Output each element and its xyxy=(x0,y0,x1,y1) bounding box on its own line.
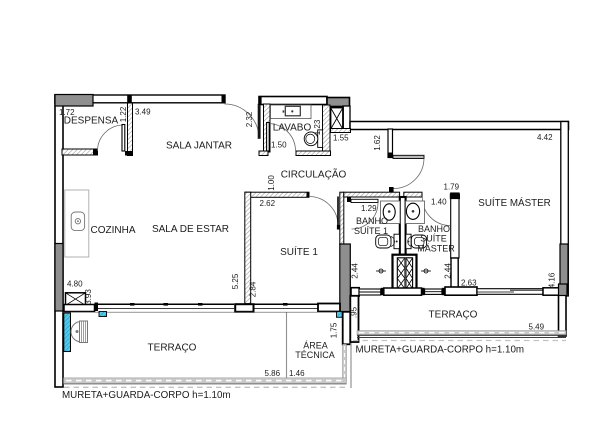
svg-text:SUÍTE 1: SUÍTE 1 xyxy=(354,226,388,236)
svg-text:1.72: 1.72 xyxy=(59,108,75,117)
svg-text:SALA DE ESTAR: SALA DE ESTAR xyxy=(152,224,229,235)
svg-text:TÉCNICA: TÉCNICA xyxy=(295,350,335,360)
svg-text:1.79: 1.79 xyxy=(444,183,460,192)
svg-text:3.49: 3.49 xyxy=(135,108,151,117)
svg-text:1.55: 1.55 xyxy=(333,134,349,143)
svg-text:SUÍTE MÁSTER: SUÍTE MÁSTER xyxy=(478,198,550,209)
svg-text:1.75: 1.75 xyxy=(330,322,339,338)
svg-text:MÁSTER: MÁSTER xyxy=(417,244,455,254)
svg-text:SUÍTE 1: SUÍTE 1 xyxy=(280,245,318,258)
svg-text:SALA JANTAR: SALA JANTAR xyxy=(166,141,232,152)
svg-text:5.25: 5.25 xyxy=(231,273,240,289)
svg-text:1.62: 1.62 xyxy=(373,135,382,151)
svg-text:BANHO: BANHO xyxy=(356,216,388,226)
svg-text:DESPENSA: DESPENSA xyxy=(64,116,119,127)
svg-text:5.49: 5.49 xyxy=(529,323,545,332)
svg-text:1.22: 1.22 xyxy=(119,106,128,122)
svg-text:2.44: 2.44 xyxy=(351,263,360,279)
svg-text:ÁREA: ÁREA xyxy=(303,341,328,351)
svg-text:TERRAÇO: TERRAÇO xyxy=(148,343,197,354)
svg-text:4.16: 4.16 xyxy=(548,272,557,288)
svg-text:4.42: 4.42 xyxy=(537,133,553,142)
svg-text:LAVABO: LAVABO xyxy=(273,123,312,134)
svg-text:COZINHA: COZINHA xyxy=(91,225,136,236)
svg-text:4.80: 4.80 xyxy=(67,280,83,289)
svg-text:5.86: 5.86 xyxy=(265,369,281,378)
svg-text:TERRAÇO: TERRAÇO xyxy=(429,310,478,321)
svg-text:2.63: 2.63 xyxy=(461,279,477,288)
svg-text:1.00: 1.00 xyxy=(267,175,276,191)
svg-text:BANHO: BANHO xyxy=(418,224,450,234)
svg-text:1.46: 1.46 xyxy=(289,369,305,378)
svg-text:MURETA+GUARDA-CORPO h=1.10m: MURETA+GUARDA-CORPO h=1.10m xyxy=(356,345,525,356)
svg-text:.95: .95 xyxy=(349,306,358,318)
svg-text:2.32: 2.32 xyxy=(245,111,254,127)
svg-text:1.23: 1.23 xyxy=(313,119,322,135)
svg-text:CIRCULAÇÃO: CIRCULAÇÃO xyxy=(281,168,347,181)
svg-text:2.84: 2.84 xyxy=(249,281,258,297)
svg-text:2.62: 2.62 xyxy=(260,199,276,208)
svg-text:2.44: 2.44 xyxy=(444,263,453,279)
svg-text:SUÍTE: SUÍTE xyxy=(420,234,447,244)
svg-text:1.40: 1.40 xyxy=(431,198,447,207)
svg-text:1.29: 1.29 xyxy=(361,204,377,213)
svg-text:3.93: 3.93 xyxy=(84,289,93,305)
svg-text:MURETA+GUARDA-CORPO h=1.10m: MURETA+GUARDA-CORPO h=1.10m xyxy=(62,390,231,401)
svg-text:1.50: 1.50 xyxy=(271,141,287,150)
